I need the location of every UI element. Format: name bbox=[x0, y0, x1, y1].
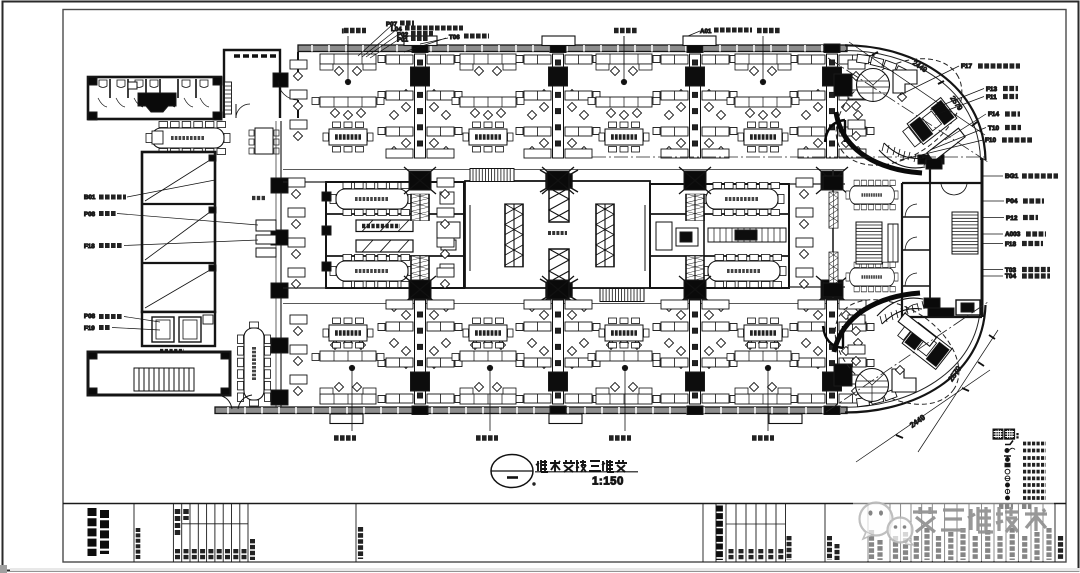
svg-text:BG1: BG1 bbox=[1005, 173, 1019, 180]
svg-text::: : bbox=[1016, 430, 1019, 440]
svg-text:A01: A01 bbox=[700, 28, 712, 35]
svg-text:1:150: 1:150 bbox=[592, 476, 624, 488]
svg-text:T10: T10 bbox=[988, 125, 999, 132]
svg-text:T06: T06 bbox=[449, 34, 460, 41]
svg-text:A003: A003 bbox=[1005, 231, 1021, 238]
svg-text:P08: P08 bbox=[84, 313, 96, 320]
svg-text:F14: F14 bbox=[988, 111, 999, 118]
svg-text:F10: F10 bbox=[985, 137, 996, 144]
svg-text:F19: F19 bbox=[84, 325, 95, 332]
svg-text:P12: P12 bbox=[1006, 215, 1018, 222]
svg-text:B01: B01 bbox=[84, 194, 96, 201]
svg-text:F11: F11 bbox=[986, 94, 997, 101]
svg-text:P08: P08 bbox=[84, 211, 96, 218]
svg-text:F18: F18 bbox=[84, 243, 95, 250]
svg-text:T04: T04 bbox=[1005, 273, 1016, 280]
svg-text:P01: P01 bbox=[397, 37, 409, 44]
svg-text:F13: F13 bbox=[986, 86, 997, 93]
svg-text:F17: F17 bbox=[961, 63, 972, 70]
svg-text:P04: P04 bbox=[1006, 198, 1018, 205]
svg-text:F18: F18 bbox=[1005, 241, 1016, 248]
